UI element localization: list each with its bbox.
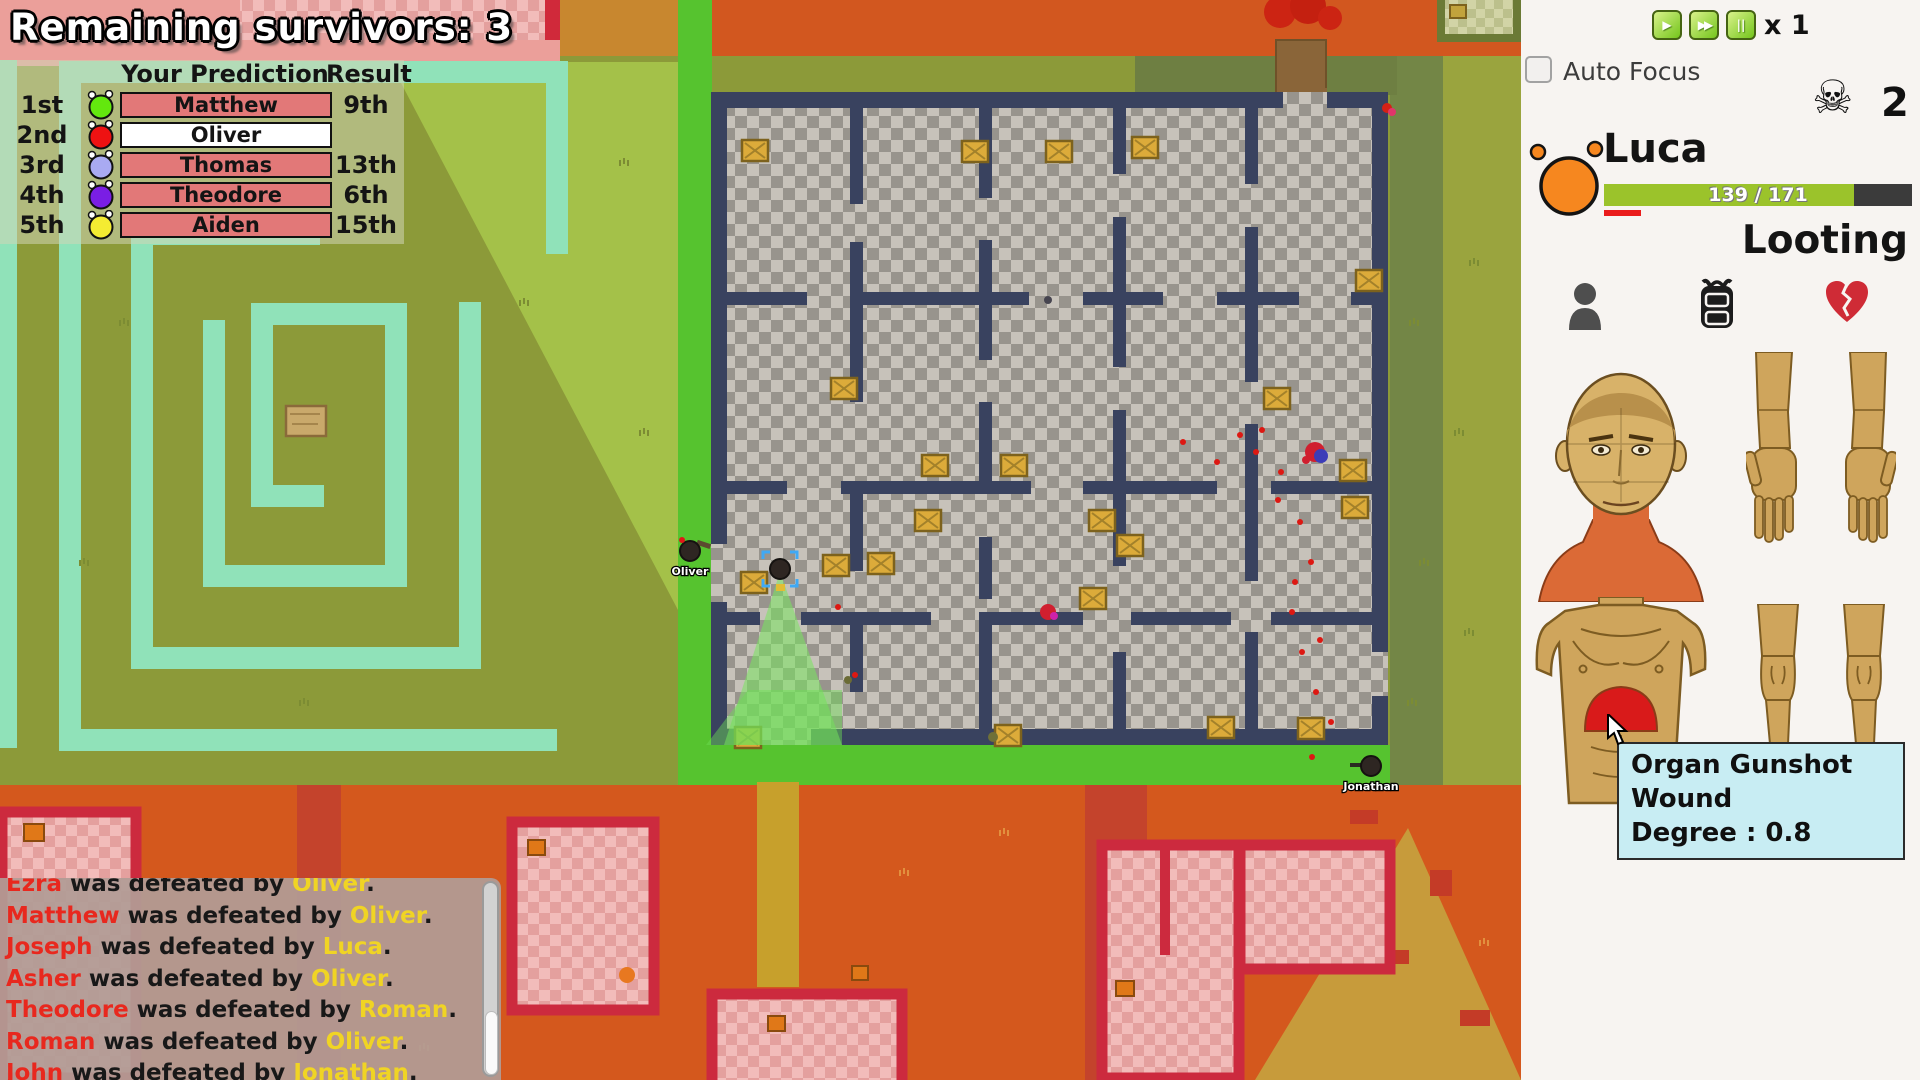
crate [1340,460,1366,481]
crate [1080,588,1106,609]
kill-feed-line: John was defeated by Jonathan. [0,1058,501,1080]
prediction-column-header: Your Prediction [118,60,332,88]
kill-feed-line: Roman was defeated by Oliver. [0,1027,501,1059]
kill-feed-line: Theodore was defeated by Roman. [0,995,501,1027]
prediction-row: 1stMatthew9th [0,90,404,120]
player-color-icon [86,90,118,120]
broken-heart-tab-icon[interactable] [1824,280,1870,324]
prediction-row: 2ndOliver [0,120,404,150]
auto-focus-checkbox[interactable] [1525,56,1552,83]
player-color-icon [86,210,118,240]
skull-icon: ☠ [1812,72,1853,122]
result-label: 13th [330,150,402,180]
wound-tooltip: Organ Gunshot Wound Degree : 0.8 [1617,742,1905,860]
prediction-name-cell[interactable]: Thomas [120,152,332,178]
rank-label: 2nd [12,120,72,150]
mouse-cursor-icon [1606,714,1632,746]
maze-crate [286,406,326,436]
sidebar-panel: ▶▶▶|| x 1 Auto Focus ☠ 2 Luca 139 / 171 … [1521,0,1920,1080]
health-bar: 139 / 171 [1604,184,1912,206]
rank-label: 1st [12,90,72,120]
crate [1298,718,1324,739]
wound-tooltip-degree: Degree : 0.8 [1631,816,1891,850]
remaining-survivors-title: Remaining survivors: 3 [10,6,513,49]
prediction-row: 4thTheodore6th [0,180,404,210]
prediction-table: Your Prediction Result 1stMatthew9th2ndO… [0,60,404,244]
crate [915,510,941,531]
crate [742,140,768,161]
building [711,92,1388,745]
crate [823,555,849,576]
rank-label: 4th [12,180,72,210]
player-color-icon [86,120,118,150]
kill-feed-line: Asher was defeated by Oliver. [0,964,501,996]
auto-focus-label: Auto Focus [1563,57,1700,86]
prediction-name-cell[interactable]: Oliver [120,122,332,148]
prediction-name-cell[interactable]: Theodore [120,182,332,208]
result-label: 6th [330,180,402,210]
result-label: 15th [330,210,402,240]
crate [1089,510,1115,531]
fast-forward-button[interactable]: ▶▶ [1689,10,1719,40]
crate [1264,388,1290,409]
crate [1001,455,1027,476]
kill-feed-scrollbar[interactable] [482,881,499,1077]
prediction-row: 5thAiden15th [0,210,404,240]
pause-button[interactable]: || [1726,10,1756,40]
character-name-label: Jonathan [1342,780,1398,793]
crate [1132,137,1158,158]
crate [922,455,948,476]
kill-count: 2 [1881,80,1909,126]
avatar [1525,138,1613,218]
crate [962,141,988,162]
play-button[interactable]: ▶ [1652,10,1682,40]
character-tab-icon[interactable] [1567,282,1603,330]
crate [995,725,1021,746]
rank-label: 5th [12,210,72,240]
player-color-icon [86,180,118,210]
crate [1046,141,1072,162]
kill-feed-panel: Ezra was defeated by Oliver.Matthew was … [0,878,501,1080]
kill-feed-line: Matthew was defeated by Oliver. [0,901,501,933]
bleed-bar [1604,210,1641,216]
crate [868,553,894,574]
prediction-row: 3rdThomas13th [0,150,404,180]
body-arms-diagram[interactable] [1746,352,1896,576]
result-column-header: Result [326,60,404,88]
backpack-tab-icon[interactable] [1697,276,1737,330]
player-color-icon [86,150,118,180]
crate [1208,717,1234,738]
crate [831,378,857,399]
prediction-name-cell[interactable]: Aiden [120,212,332,238]
result-label: 9th [330,90,402,120]
body-head-diagram[interactable] [1533,352,1709,602]
building-fragment [1437,0,1521,42]
dirt-path [757,782,799,987]
crate [1117,535,1143,556]
kill-feed-line: Ezra was defeated by Oliver. [0,878,501,901]
scrollbar-thumb[interactable] [485,1011,498,1075]
green-zone-strip [678,0,712,800]
crate [1356,270,1382,291]
health-bar-text: 139 / 171 [1604,184,1912,206]
status-label: Looting [1742,218,1908,263]
speed-multiplier-label: x 1 [1764,10,1810,41]
prediction-name-cell[interactable]: Matthew [120,92,332,118]
character-name: Luca [1603,126,1708,172]
wound-tooltip-title: Organ Gunshot Wound [1631,748,1891,816]
crate [1342,497,1368,518]
character-name-label: Oliver [672,565,710,578]
kill-feed-line: Joseph was defeated by Luca. [0,932,501,964]
game-screen: OliverJonathan Remaining survivors: 3 Yo… [0,0,1920,1080]
body-legs-diagram[interactable] [1746,604,1896,752]
rank-label: 3rd [12,150,72,180]
